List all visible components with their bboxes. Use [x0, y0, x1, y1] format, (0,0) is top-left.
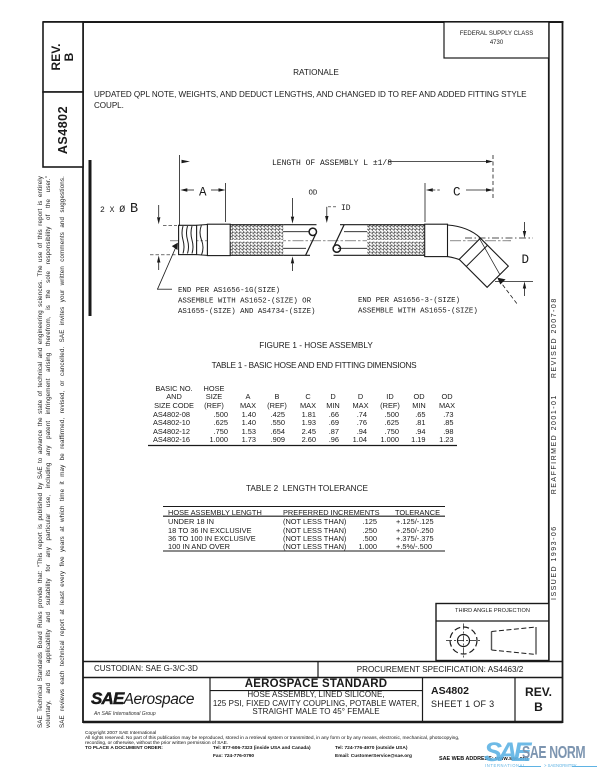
svg-text:OD: OD	[309, 190, 318, 198]
svg-text:C: C	[453, 186, 461, 200]
svg-text:2 X Ø B: 2 X Ø B	[100, 202, 138, 217]
svg-text:ASSEMBLE WITH AS1655-(SIZE): ASSEMBLE WITH AS1655-(SIZE)	[358, 307, 478, 315]
svg-text:A: A	[199, 186, 207, 200]
svg-text:END PER AS1656-3-(SIZE): END PER AS1656-3-(SIZE)	[358, 297, 460, 305]
svg-text:LENGTH OF ASSEMBLY L ±1/8: LENGTH OF ASSEMBLY L ±1/8	[272, 159, 392, 168]
svg-text:ID: ID	[341, 204, 351, 213]
svg-text:ASSEMBLE WITH AS1652-(SIZE) OR: ASSEMBLE WITH AS1652-(SIZE) OR	[178, 297, 312, 305]
svg-text:D: D	[522, 253, 530, 267]
svg-text:END PER AS1656-1G(SIZE): END PER AS1656-1G(SIZE)	[178, 287, 280, 295]
svg-text:AS1655-(SIZE) AND AS4734-(SIZE: AS1655-(SIZE) AND AS4734-(SIZE)	[178, 308, 316, 316]
